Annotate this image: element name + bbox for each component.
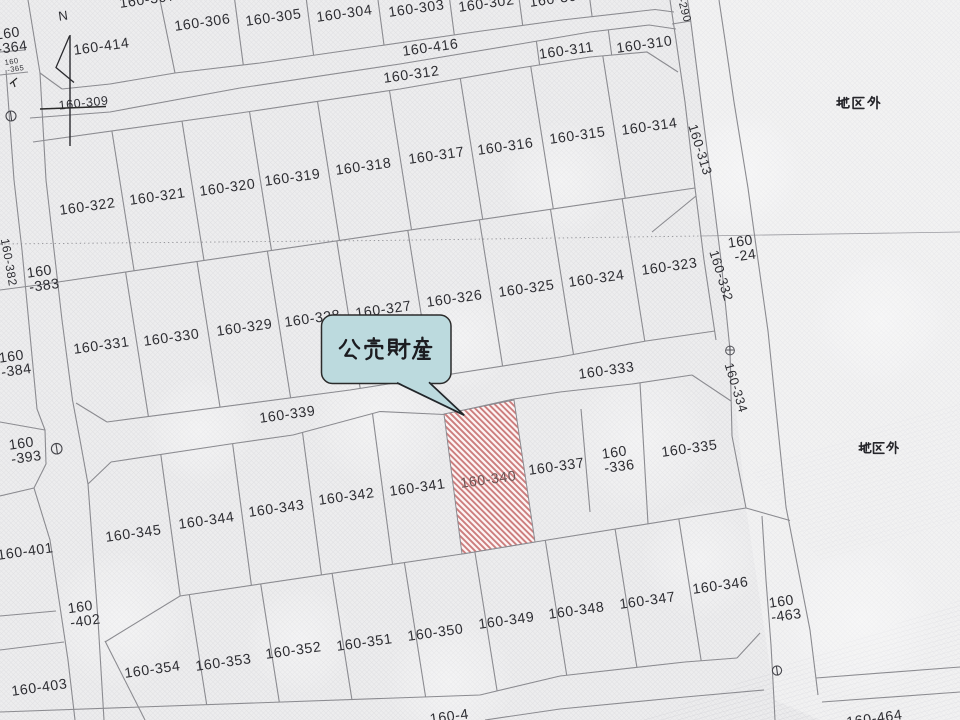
svg-text:N: N — [57, 7, 69, 23]
